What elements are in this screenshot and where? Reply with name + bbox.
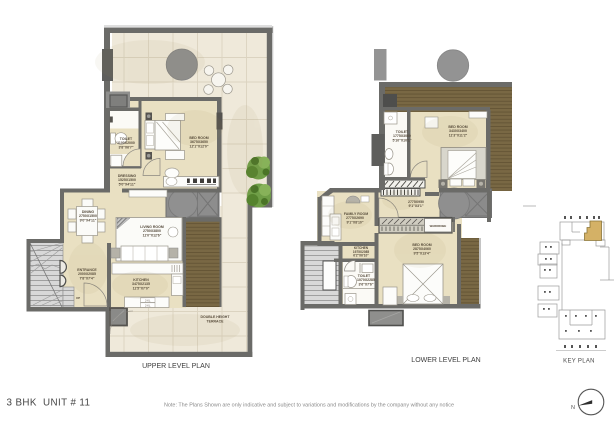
svg-text:LIVING ROOM2750X380011'0"X12'6: LIVING ROOM2750X380011'0"X12'6" [140, 225, 164, 237]
svg-text:KITCHEN1975X20856'2"X6'10": KITCHEN1975X20856'2"X6'10" [353, 246, 370, 258]
svg-text:WARDROBE: WARDROBE [430, 224, 447, 228]
svg-text:UPPER LEVEL PLAN: UPPER LEVEL PLAN [142, 363, 210, 370]
svg-text:2-KL: 2-KL [145, 304, 151, 308]
svg-text:2-KL: 2-KL [145, 299, 151, 303]
svg-text:N: N [571, 405, 575, 411]
svg-text:UP: UP [76, 296, 80, 300]
svg-text:DRESSING1525X15005'0"X4'11": DRESSING1525X15005'0"X4'11" [118, 174, 137, 186]
svg-text:3 BHK UNIT # 11: 3 BHK UNIT # 11 [7, 398, 91, 409]
svg-text:LOWER LEVEL PLAN: LOWER LEVEL PLAN [411, 357, 480, 364]
svg-text:KEY PLAN: KEY PLAN [563, 359, 595, 365]
svg-text:Note: The Plans Shown are only: Note: The Plans Shown are only indicativ… [164, 403, 454, 409]
